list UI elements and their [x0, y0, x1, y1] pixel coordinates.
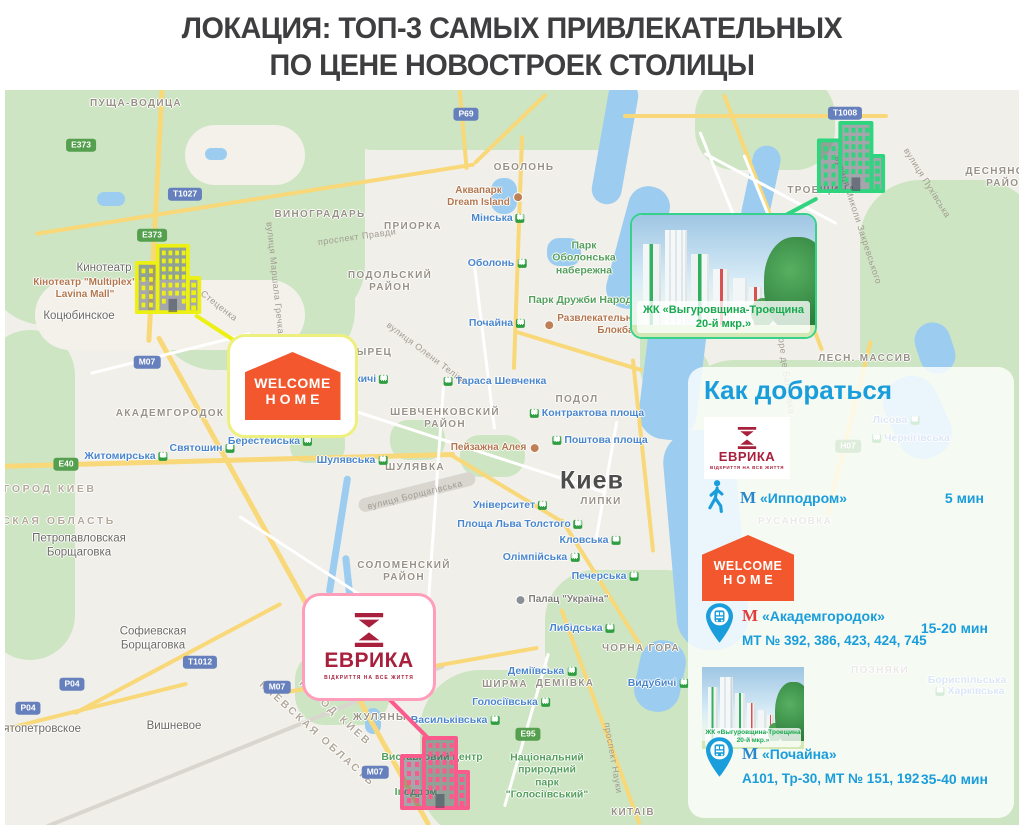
map-label-town: Вишневое	[147, 720, 202, 734]
map-label-district: ОБОЛОНЬ	[494, 162, 555, 174]
map-road-major	[73, 602, 282, 716]
routes-akademgorodok: МТ № 392, 386, 423, 424, 745	[742, 633, 927, 648]
zhk-caption-line1: ЖК «Выгуровщина-Троещина	[643, 304, 804, 316]
evrika-tagline: відкриття на все життя	[324, 675, 414, 681]
map-water	[491, 178, 517, 214]
evrika-logo: ЕВРИКА відкриття на все життя	[704, 417, 790, 479]
metro-logo-icon: М	[742, 607, 758, 624]
welcome-home-line2: HOME	[719, 573, 777, 587]
metro-station-icon: М	[226, 444, 235, 453]
map-label-town: Софиевская Борщаговка	[120, 625, 187, 652]
zhk-caption-line2: 20-й мкр.»	[696, 318, 751, 330]
welcome-home-line1: WELCOME	[714, 559, 783, 573]
welcome-home-line1: WELCOME	[254, 375, 331, 391]
page-title: ЛОКАЦИЯ: ТОП-3 САМЫХ ПРИВЛЕКАТЕЛЬНЫХ ПО …	[20, 10, 1003, 84]
travel-time: 35-40 мин	[921, 771, 988, 787]
evrika-mark-icon	[349, 613, 389, 647]
map-water	[97, 192, 125, 206]
metro-station-icon: М	[611, 536, 620, 545]
map-road-minor	[349, 408, 607, 494]
poi-icon	[544, 320, 554, 330]
map-road-major	[516, 330, 643, 372]
road-badge: М07	[362, 766, 389, 779]
map-road-minor	[473, 265, 496, 429]
travel-time: 15-20 мин	[921, 620, 988, 636]
metro-station-icon: М	[570, 553, 579, 562]
welcome-home-logo: WELCOME HOME	[702, 535, 794, 601]
metro-logo-icon: М	[742, 745, 758, 762]
road-badge: Т1012	[183, 656, 217, 669]
building-marker-evrika-icon	[398, 732, 474, 812]
poi-icon	[529, 443, 539, 453]
metro-station-icon: М	[444, 377, 453, 386]
map-green-area	[5, 330, 75, 660]
welcome-home-logo: WELCOME HOME	[245, 352, 341, 420]
map-green-area	[605, 585, 670, 645]
map-green-area	[335, 90, 635, 150]
map-urban-area	[185, 125, 305, 185]
bus-pin-icon	[706, 737, 733, 777]
evrika-mark-icon	[734, 427, 760, 449]
map-label-metro: ОлімпійськаМ	[503, 551, 580, 563]
walking-person-icon	[704, 479, 729, 515]
station-pochaina: «Почайна»	[762, 746, 837, 762]
map-water	[547, 238, 581, 266]
map-label-district: АКАДЕМГОРОДОК	[116, 408, 224, 420]
poi-icon	[516, 595, 526, 605]
evrika-name: ЕВРИКА	[324, 649, 413, 673]
title-line-2: ПО ЦЕНЕ НОВОСТРОЕК СТОЛИЦЫ	[20, 47, 1003, 84]
map-road-major	[5, 682, 188, 734]
evrika-callout: ЕВРИКА відкриття на все життя	[302, 593, 436, 701]
map-label-district: ПОДОЛ	[555, 394, 598, 406]
map-label-district: СОЛОМЕНСКИЙ РАЙОН	[357, 560, 451, 584]
welcome-home-callout: WELCOME HOME	[227, 334, 358, 438]
building-marker-lavina-icon	[133, 240, 205, 316]
zhk-render-image: ЖК «Выгуровщина-Троещина 20-й мкр.»	[632, 215, 815, 337]
metro-logo-icon: М	[740, 489, 756, 506]
zhk-caption: ЖК «Выгуровщина-Троещина 20-й мкр.»	[637, 301, 809, 334]
map-label-metro: МТараса Шевченка	[444, 375, 547, 387]
travel-time: 5 мин	[945, 490, 984, 506]
metro-station-icon: М	[530, 409, 539, 418]
panel-title: Как добраться	[704, 375, 892, 406]
zhk-callout: ЖК «Выгуровщина-Троещина 20-й мкр.»	[630, 213, 817, 339]
title-line-1: ЛОКАЦИЯ: ТОП-3 САМЫХ ПРИВЛЕКАТЕЛЬНЫХ	[20, 10, 1003, 47]
map-label-metro: МПоштова площа	[552, 434, 647, 446]
map-label-metro: МКонтрактова площа	[530, 407, 644, 419]
road-badge: Р04	[59, 678, 84, 691]
map-water	[205, 148, 227, 160]
station-akademgorodok: «Академгородок»	[762, 608, 885, 624]
kyiv-map: ПУЩА-ВОДИЦАВИНОГРАДАРЬПРИОРКАОБОЛОНЬСЫРЕ…	[5, 90, 1019, 825]
map-road-minor	[595, 421, 619, 540]
welcome-home-line2: HOME	[262, 391, 324, 407]
map-label-street: вулиця Олени Теліги	[384, 320, 467, 386]
routes-pochaina: А101, Тр-30, МТ № 151, 192	[742, 771, 919, 786]
bus-pin-icon	[706, 603, 733, 643]
zhk-caption-line1: ЖК «Выгуровщина-Троещина	[705, 729, 800, 736]
road-badge: Р04	[15, 702, 40, 715]
building-marker-troeshchyna-icon	[815, 116, 889, 196]
directions-panel: Как добраться ЕВРИКА відкриття на все жи…	[688, 367, 1014, 818]
metro-station-icon: М	[379, 375, 388, 384]
metro-station-icon: М	[552, 436, 561, 445]
metro-station-icon: М	[574, 520, 583, 529]
station-ippodrom: «Ипподром»	[760, 490, 847, 506]
map-label-district: ПРИОРКА	[384, 221, 442, 233]
evrika-tagline: відкриття на все життя	[710, 465, 784, 470]
evrika-name: ЕВРИКА	[719, 449, 775, 464]
map-railway	[357, 471, 477, 514]
